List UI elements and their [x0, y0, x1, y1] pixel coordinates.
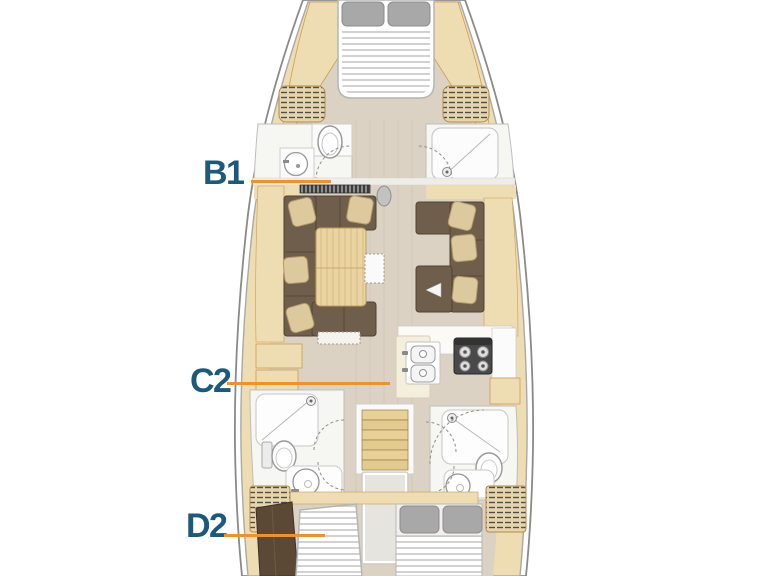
aft-cabin-port-berth	[296, 504, 362, 576]
aft-cabin-starboard	[396, 504, 482, 576]
faucet	[283, 160, 289, 163]
shower-head-dot	[310, 400, 313, 403]
label-b1-text: B1	[203, 154, 243, 192]
pillow	[443, 506, 482, 533]
wood-band-starboard	[426, 185, 516, 199]
shower-head-dot	[446, 171, 449, 174]
galley-counter-right	[492, 328, 516, 378]
faucet	[291, 489, 299, 492]
label-b1-leader-line	[251, 180, 331, 183]
forward-head-port	[254, 124, 352, 182]
label-d2-leader-line	[224, 534, 325, 537]
headboard-wood	[288, 492, 478, 504]
trim-port	[256, 186, 284, 342]
mattress	[396, 536, 482, 576]
shower-head-dot	[451, 417, 454, 420]
galley-stove	[454, 338, 492, 374]
trim-starboard	[484, 198, 518, 336]
side-seat-starboard	[443, 86, 489, 122]
toilet	[318, 126, 342, 158]
label-d2: D2	[186, 509, 226, 543]
toilet-tank	[262, 442, 272, 468]
saloon-folding-leaf	[365, 254, 384, 283]
saloon-table	[316, 228, 366, 306]
companionway-stairs	[362, 410, 408, 470]
pillow	[388, 2, 430, 26]
dashed-bench	[318, 332, 360, 344]
side-seat-port	[279, 86, 325, 122]
label-b1: B1	[203, 156, 243, 190]
louver-vent	[300, 185, 370, 193]
aft-cabin-port	[256, 502, 362, 576]
label-d2-text: D2	[186, 507, 226, 545]
forward-berth-mattress	[342, 30, 430, 94]
vent-starboard	[486, 486, 526, 532]
sink-drain	[296, 164, 300, 168]
pillow	[400, 506, 439, 533]
deck-plan-svg	[0, 0, 768, 576]
pillow	[342, 2, 384, 26]
mast	[377, 186, 391, 206]
sink	[285, 153, 308, 176]
galley-double-sink	[402, 342, 440, 384]
aft-cabin-port-locker	[256, 502, 298, 576]
cabinet-port	[256, 344, 302, 368]
galley-cabinet	[490, 378, 520, 404]
label-c2-leader-line	[227, 382, 390, 385]
label-c2: C2	[190, 364, 230, 398]
label-c2-text: C2	[190, 362, 230, 400]
aft-head-port	[250, 390, 346, 498]
yacht-deck-plan: B1 C2 D2	[0, 0, 768, 576]
